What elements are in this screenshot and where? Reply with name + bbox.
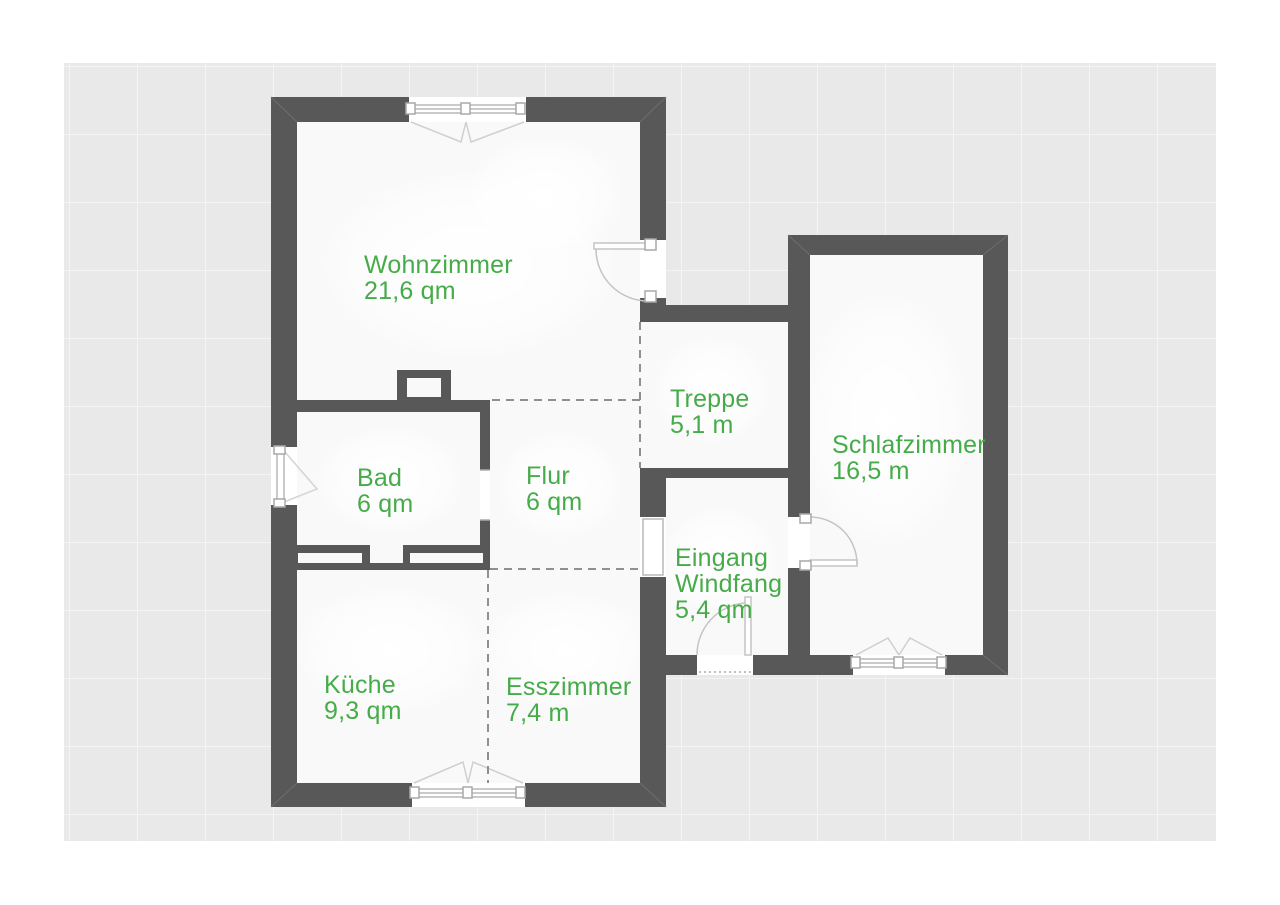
room-area: 6 qm xyxy=(357,491,413,517)
wall-schlafzimmer-west-upper[interactable] xyxy=(788,235,810,517)
chimney-flue xyxy=(407,378,441,397)
wall-schlafzimmer-north[interactable] xyxy=(788,235,1008,255)
window-hinge xyxy=(274,499,285,507)
room-area: 7,4 m xyxy=(506,700,631,726)
door-hinge xyxy=(800,561,811,570)
room-name: Schlafzimmer xyxy=(832,432,986,458)
wall-bad-east-upper[interactable] xyxy=(480,400,490,470)
room-name: Esszimmer xyxy=(506,674,631,700)
room-name: Bad xyxy=(357,465,413,491)
door-leaf xyxy=(810,560,857,566)
floorplan-drawing xyxy=(0,0,1280,905)
wall-schlafzimmer-west-lower[interactable] xyxy=(788,568,810,675)
wall-wohnzimmer-south[interactable] xyxy=(271,400,490,412)
window-eingang-opening[interactable] xyxy=(640,517,666,577)
room-name: Treppe xyxy=(670,386,749,412)
room-name: Küche xyxy=(324,672,402,698)
door-leaf xyxy=(594,243,652,249)
door-hinge xyxy=(645,239,656,250)
room-area: 16,5 m xyxy=(832,458,986,484)
room-label-eingang: Eingang Windfang 5,4 qm xyxy=(675,545,782,623)
window-hinge xyxy=(516,787,525,798)
wall-bad-south-inset-right xyxy=(410,553,483,563)
door-bad-opening[interactable] xyxy=(480,470,490,520)
room-area: 5,1 m xyxy=(670,412,749,438)
window-hinge xyxy=(410,787,419,798)
room-name: Flur xyxy=(526,463,582,489)
room-name: Wohnzimmer xyxy=(364,252,513,278)
door-hinge xyxy=(645,291,656,302)
wall-treppe-south[interactable] xyxy=(640,468,810,478)
highlight xyxy=(800,290,970,550)
wall-schlafzimmer-east[interactable] xyxy=(983,235,1008,675)
window-hinge xyxy=(937,657,946,668)
wall-eingang-south-left[interactable] xyxy=(640,655,697,675)
room-label-flur: Flur 6 qm xyxy=(526,463,582,515)
room-label-wohnzimmer: Wohnzimmer 21,6 qm xyxy=(364,252,513,304)
room-label-treppe: Treppe 5,1 m xyxy=(670,386,749,438)
highlight xyxy=(465,135,625,255)
window-hinge xyxy=(516,103,525,114)
window-hinge xyxy=(894,657,903,668)
room-area: 9,3 qm xyxy=(324,698,402,724)
wall-bad-south-inset-left xyxy=(298,553,362,563)
window-hinge xyxy=(461,103,470,114)
room-area: 6 qm xyxy=(526,489,582,515)
room-name-2: Windfang xyxy=(675,571,782,597)
wall-treppe-north[interactable] xyxy=(640,305,810,322)
room-label-bad: Bad 6 qm xyxy=(357,465,413,517)
window-hinge xyxy=(851,657,860,668)
wall-main-east-lower[interactable] xyxy=(640,577,666,807)
floorplan-stage: Wohnzimmer 21,6 qm Treppe 5,1 m Schlafzi… xyxy=(0,0,1280,905)
wall-bad-south-opening xyxy=(370,545,403,563)
window-hinge xyxy=(463,787,472,798)
room-area: 21,6 qm xyxy=(364,278,513,304)
room-label-kueche: Küche 9,3 qm xyxy=(324,672,402,724)
window-hinge xyxy=(406,103,415,114)
room-label-esszimmer: Esszimmer 7,4 m xyxy=(506,674,631,726)
room-label-schlafzimmer: Schlafzimmer 16,5 m xyxy=(832,432,986,484)
window-hinge xyxy=(274,446,285,454)
door-hinge xyxy=(800,514,811,523)
room-area: 5,4 qm xyxy=(675,597,782,623)
room-name: Eingang xyxy=(675,545,782,571)
